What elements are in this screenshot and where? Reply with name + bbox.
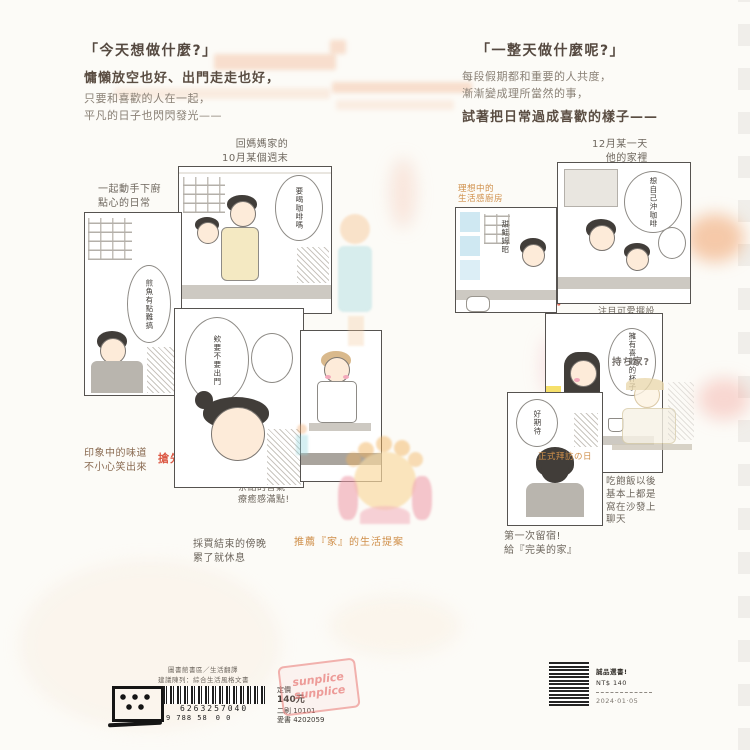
figure-apron [221, 227, 259, 281]
blush-mark [325, 375, 331, 379]
counter [558, 277, 690, 289]
caption-snack: 印象中的味道 不小心笑出來 [84, 447, 147, 474]
left-header-sub2: 平凡的日子也閃閃發光—— [84, 108, 334, 125]
shelf [88, 218, 132, 260]
comic-panel-blue-kitchen: 甜鮭姆昭 [455, 207, 557, 313]
panel-vertical-text: 甜鮭姆昭 [500, 220, 510, 290]
caption-rest: 採買結束的傍晚 累了就休息 [193, 538, 267, 565]
figure-head [522, 244, 545, 267]
window-blue [460, 260, 480, 280]
isbn-barcode [163, 686, 265, 704]
faded-mascot-illustration [330, 442, 448, 534]
faded-sketch-desk: 持ち家? [612, 352, 698, 472]
window-blue [460, 212, 480, 232]
faded-head [297, 424, 307, 434]
color-smudge [686, 214, 744, 262]
figure-body [317, 381, 357, 423]
faded-ghost-text [336, 100, 454, 110]
figure-head [324, 357, 350, 383]
meta-shelving-line: 建議陳列：綜合生活風格文書 [158, 674, 249, 684]
speech-bubble: 煎魚有點難搞 [127, 265, 171, 343]
panel-line [179, 172, 331, 174]
faded-shape [348, 316, 364, 346]
faded-ghost-text [332, 82, 472, 93]
figure-head [570, 360, 597, 387]
speech-text: 想自己沖咖啡 [648, 177, 658, 228]
color-smudge [330, 596, 460, 656]
mascot-face [354, 452, 416, 510]
color-smudge [698, 378, 750, 420]
sticker-line1: 誠品選書! [596, 666, 666, 676]
isbn-digits-row2: 9 788 58 0 0 [166, 713, 231, 723]
caption-date-left: 回媽媽家的 10月某個週末 [222, 138, 288, 165]
meta-category-line: 圖書館書區／生活翻譯 [168, 664, 238, 674]
publisher-logo [112, 686, 164, 722]
caption-date-right: 12月某一天 他的家裡 [592, 138, 648, 165]
left-header-bold-line: 慵懶放空也好、出門走走也好， [84, 67, 334, 86]
speech-bubble: 想自己沖咖啡 [624, 171, 682, 233]
right-header-title: 「一整天做什麼呢?」 [476, 40, 712, 60]
price-sticker-text: 誠品選書! NT$ 140 2024·01·05 [596, 666, 666, 705]
caption-share: 一起動手下廚 點心的日常 [98, 183, 161, 210]
speech-text: 要喝咖啡嗎 [294, 187, 304, 230]
speech-text: 煎魚有點難搞 [144, 279, 154, 330]
mascot-shoulders [360, 506, 410, 524]
shelf [183, 177, 225, 213]
right-header-bold-line: 試著把日常過成喜歡的樣子—— [462, 106, 712, 125]
sticker-line3: 2024·01·05 [596, 697, 666, 705]
kitchen-counter [179, 285, 331, 299]
faded-color-illustration [330, 212, 384, 354]
figure-body [91, 361, 143, 393]
hair-bun [195, 391, 213, 409]
speech-bubble: 好期待 [516, 399, 558, 447]
speech-text: 欸要不要出門 [212, 335, 222, 386]
petal [376, 436, 392, 452]
faded-mini-figure [294, 424, 310, 460]
comic-panel-closeup: 欸要不要出門 [174, 308, 304, 488]
left-header-sub1: 只要和喜歡的人在一起， [84, 91, 334, 108]
caption-sofa: 吃飽飯以後 基本上都是 窩在沙發上 聊天 [606, 476, 656, 527]
right-header-sub2: 漸漸變成理所當然的事， [462, 86, 712, 103]
shading [147, 347, 177, 393]
speech-bubble [251, 333, 293, 383]
figure-head [197, 222, 219, 244]
faded-body [338, 246, 372, 312]
sticker-barcode [549, 662, 589, 706]
shading [297, 247, 329, 283]
right-page-header: 「一整天做什麼呢?」 每段假期都和重要的人共度， 漸漸變成理所當然的事， 試著把… [462, 40, 712, 125]
faded-head [340, 214, 370, 244]
book-code: 愛書 4202059 [277, 716, 324, 725]
blush-mark [343, 375, 349, 379]
window-blue [460, 236, 480, 256]
blush-mark [574, 378, 580, 382]
sticker-divider [596, 692, 652, 693]
right-header-sub1: 每段假期都和重要的人共度， [462, 69, 712, 86]
comic-panel-shelf: 煎魚有點難搞 [84, 212, 182, 396]
comic-panel-kitchen-left: 要喝咖啡嗎 [178, 166, 332, 314]
isbn-digits: 6263257040 [180, 704, 248, 713]
figure-face-closeup [211, 407, 265, 461]
mascot-hair-left [338, 476, 358, 520]
window-frame [564, 169, 618, 207]
sketch-note: 持ち家? [612, 354, 650, 368]
desk-line [612, 444, 692, 450]
speech-bubble: 要喝咖啡嗎 [275, 175, 323, 241]
left-header-title: 「今天想做什麼?」 [84, 40, 334, 60]
speech-bubble [658, 227, 686, 259]
sticker-line2: NT$ 140 [596, 679, 666, 687]
speech-bubble: 欸要不要出門 [185, 317, 249, 403]
caption-kitchen: 理想中的 生活感廚房 [458, 184, 503, 204]
scan-edge-artifact [738, 0, 750, 750]
tray [309, 423, 371, 431]
shading [574, 413, 598, 447]
faded-hair [626, 378, 664, 390]
cat-figure [466, 296, 490, 312]
red-stamp-watermark: sunplice sunplice [277, 657, 361, 716]
caption-recommend: 推薦『家』的生活提案 [294, 536, 404, 550]
left-page-header: 「今天想做什麼?」 慵懶放空也好、出門走走也好， 只要和喜歡的人在一起， 平凡的… [84, 40, 334, 124]
caption-stay: 第一次留宿! 給『完美的家』 [504, 530, 578, 557]
comic-panel-his-home: 想自己沖咖啡 [557, 162, 691, 304]
mascot-hair-right [412, 476, 432, 520]
figure-shoulders [526, 483, 584, 517]
speech-text: 好期待 [532, 410, 542, 436]
faded-body [296, 435, 308, 455]
figure-head [230, 201, 256, 227]
figure-head [626, 248, 649, 271]
shading [668, 382, 694, 440]
book-spread-photo: 「今天想做什麼?」 慵懶放空也好、出門走走也好， 只要和喜歡的人在一起， 平凡的… [0, 0, 750, 750]
caption-visit: 正式拜訪の日 [538, 452, 592, 463]
color-smudge [390, 158, 416, 228]
figure-head [589, 225, 615, 251]
